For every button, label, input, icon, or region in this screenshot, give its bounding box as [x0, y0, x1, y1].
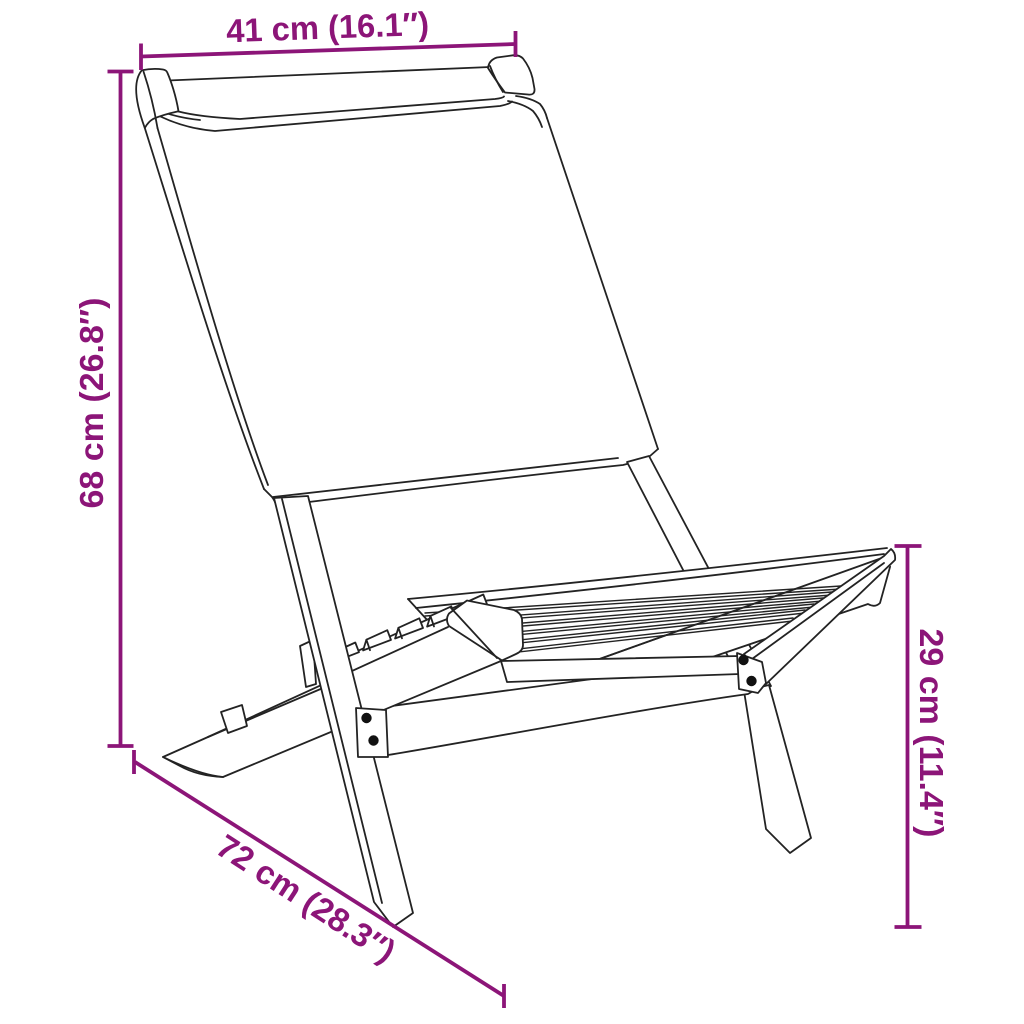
svg-text:68 cm (26.8″): 68 cm (26.8″): [73, 298, 110, 509]
svg-text:41 cm (16.1″): 41 cm (16.1″): [225, 5, 429, 49]
svg-text:29 cm (11.4″): 29 cm (11.4″): [913, 629, 950, 838]
